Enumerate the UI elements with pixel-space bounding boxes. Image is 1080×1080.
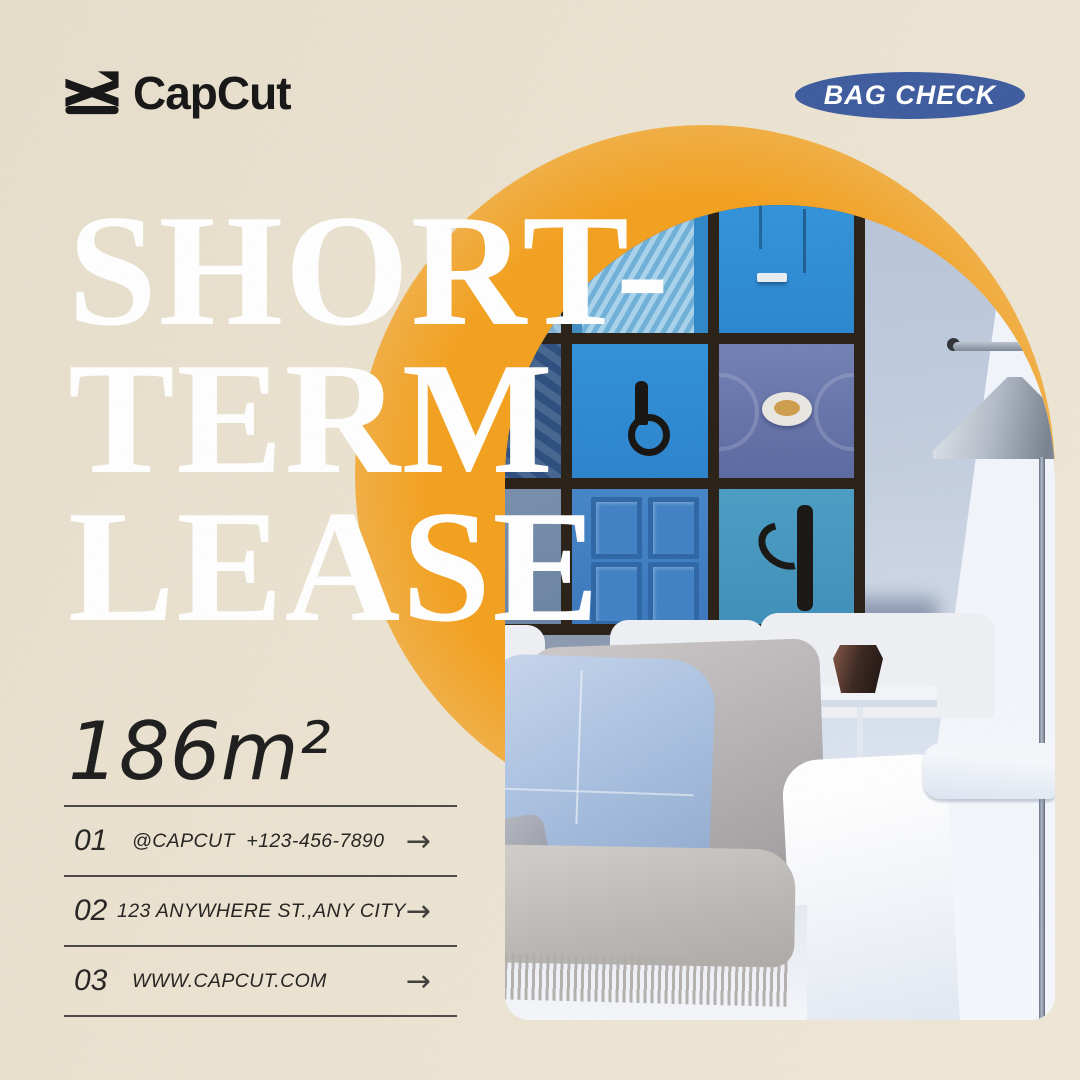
contact-row: 03 WWW.CAPCUT.COM → [64,945,457,1017]
contact-list: 01 @CAPCUT +123-456-7890 → 02 123 ANYWHE… [64,805,457,1017]
capcut-logo-icon [64,71,120,116]
white-table [923,743,1055,799]
throw-fringe [505,953,791,1007]
headline-line-3: LEASE [68,492,671,640]
badge-label: BAG CHECK [824,80,997,111]
contact-address: 123 ANYWHERE ST.,ANY CITY [117,900,406,923]
capcut-logo: CapCut [64,66,291,120]
dark-vase [833,645,883,693]
bag-check-badge: BAG CHECK [795,72,1025,119]
arrow-icon: → [406,824,457,859]
contact-row: 01 @CAPCUT +123-456-7890 → [64,805,457,875]
contact-website: WWW.CAPCUT.COM [132,970,327,993]
row-number: 01 [64,824,132,858]
door-photo [719,489,854,624]
headline-line-2: TERM [68,344,671,492]
side-table-edge [815,700,937,707]
row-number: 03 [64,964,132,998]
floor-lamp-stem [1036,350,1042,380]
contact-row: 02 123 ANYWHERE ST.,ANY CITY → [64,875,457,945]
row-number: 02 [64,894,117,928]
headline: SHORT- TERM LEASE [68,196,671,640]
contact-handle-phone: @CAPCUT +123-456-7890 [132,830,384,853]
brand-name: CapCut [133,66,291,120]
arrow-icon: → [406,894,457,929]
poster: CapCut BAG CHECK [0,0,1080,1080]
throw-blanket [505,844,796,967]
door-photo [719,205,854,333]
arrow-icon: → [406,964,457,999]
headline-line-1: SHORT- [68,196,671,344]
door-photo [719,344,854,479]
floor-lamp-pole [1039,457,1045,1020]
area-label: 186m² [68,712,331,792]
